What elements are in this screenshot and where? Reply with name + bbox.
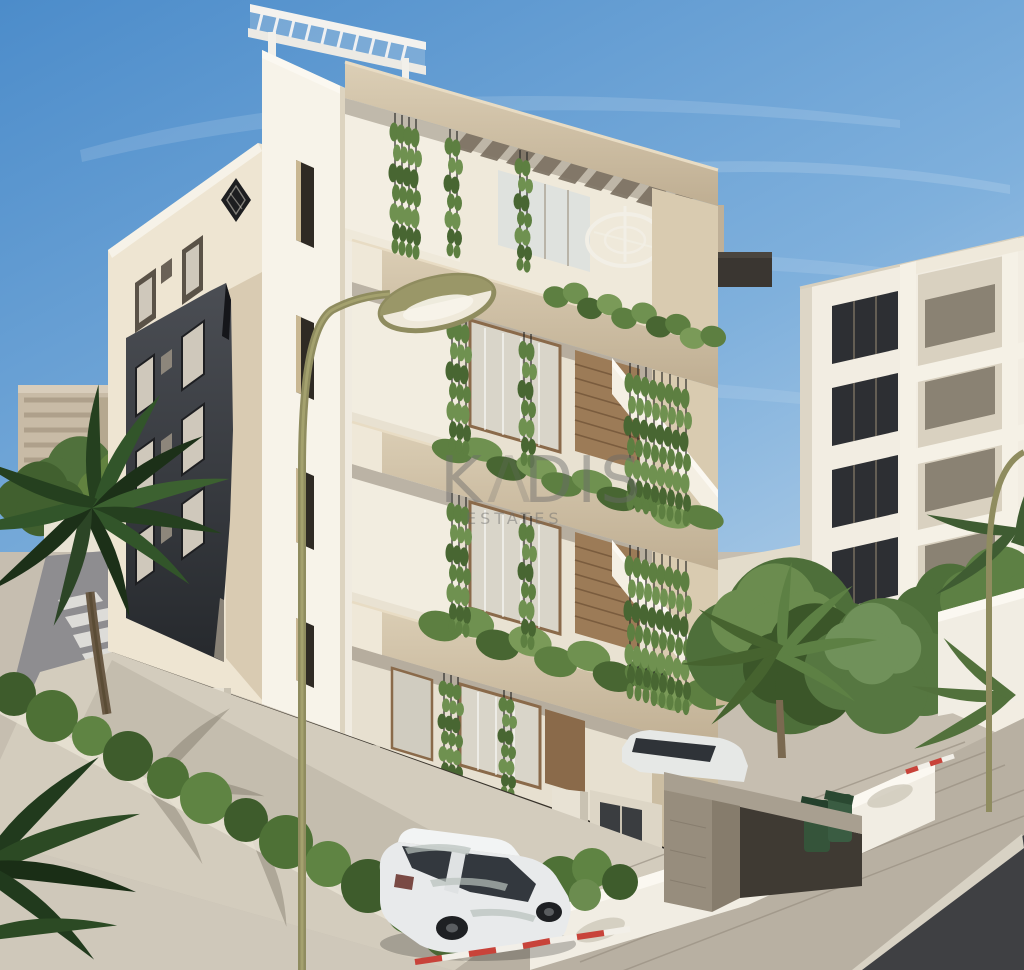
watermark: K Λ DIS ESTATES: [440, 444, 645, 528]
architectural-render: K Λ DIS ESTATES: [0, 0, 1024, 970]
wood-entrance-door: [545, 709, 585, 795]
watermark-brand-left: K: [440, 444, 486, 518]
watermark-brand-right: DIS: [524, 444, 645, 518]
window: [392, 668, 432, 760]
enclosure-wall: [664, 790, 712, 912]
watermark-subtitle: ESTATES: [466, 509, 563, 528]
